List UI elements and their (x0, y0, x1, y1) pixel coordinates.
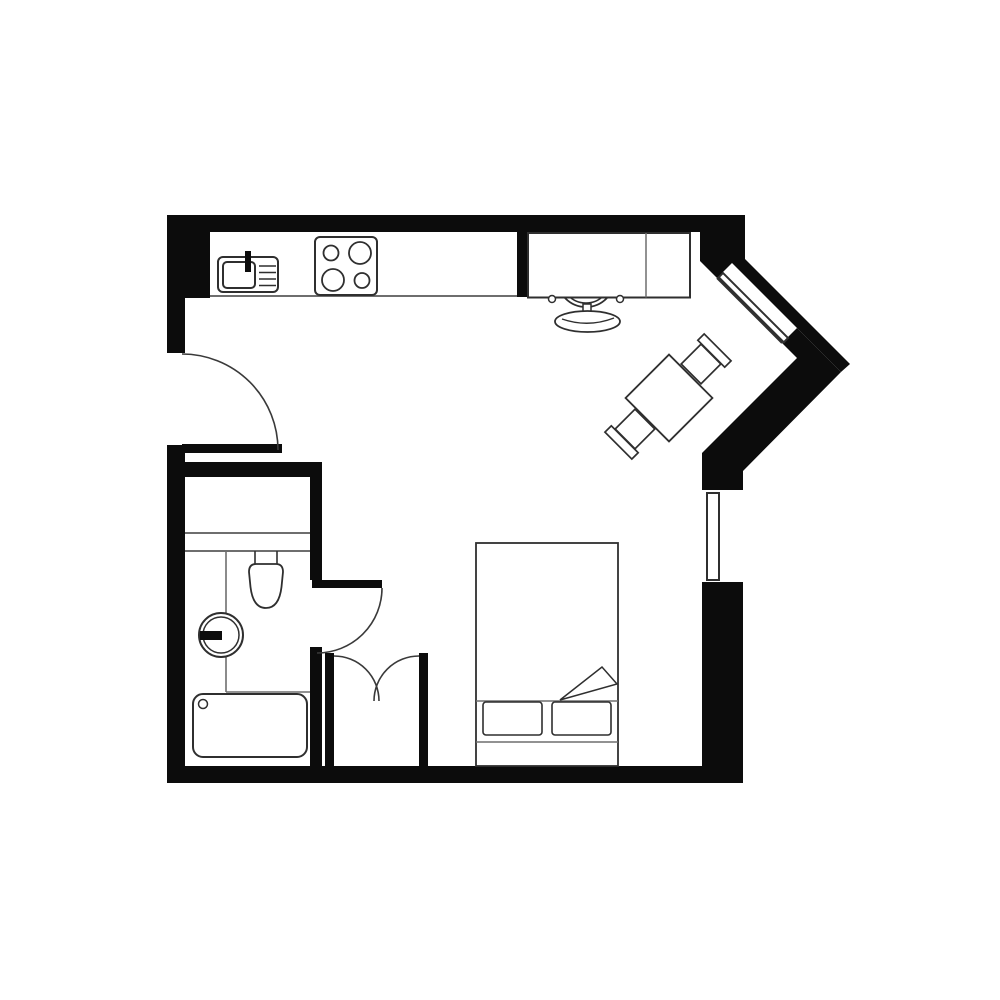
closet-door-left-arc (334, 656, 379, 701)
floor-plan-page: Studio apartment floor plan Studio apart… (0, 0, 1000, 1000)
bathroom-door (312, 580, 382, 653)
wall-left-upper (167, 215, 185, 353)
wall-left-lower (167, 445, 185, 782)
toilet (249, 551, 283, 608)
wall-bottom (167, 766, 743, 783)
sink-faucet (245, 251, 251, 272)
basin-faucet (200, 631, 222, 640)
wall-top (167, 215, 745, 232)
bathroom-door-swing-arc (317, 588, 382, 653)
bathroom-door-leaf (312, 580, 382, 588)
desk (528, 233, 690, 298)
bathroom (185, 533, 310, 757)
closet-doors (334, 656, 419, 701)
bed (476, 543, 618, 766)
entry-door-swing-arc (182, 354, 278, 450)
side-window (707, 493, 719, 580)
wall-pillar-kitchen (517, 232, 528, 297)
entry-door (182, 354, 282, 453)
bathtub (193, 694, 307, 757)
entry-door-leaf (182, 444, 282, 453)
wall-right-lower (702, 582, 743, 782)
wall-bathroom-right-lower (310, 647, 322, 766)
wall-bathroom-top (167, 462, 322, 477)
floor-plan-drawing: Studio apartment floor plan (0, 0, 1000, 1000)
desk-chair-armrest-right (617, 296, 624, 303)
pillow-right (552, 702, 611, 735)
round-basin (199, 613, 243, 657)
desk-chair-armrest-left (549, 296, 556, 303)
pillow-left (483, 702, 542, 735)
wall-chamfer-upper (700, 232, 745, 278)
side-window-pane (707, 493, 719, 580)
wall-bathroom-right-upper (310, 462, 322, 580)
wall-closet-jamb-right (419, 653, 428, 766)
wall-closet-jamb-left (325, 653, 334, 766)
stove (315, 237, 377, 295)
desk-chair-backrest (555, 311, 620, 332)
kitchen-sink (218, 251, 278, 292)
closet-door-right-arc (374, 656, 419, 701)
toilet-bowl (249, 564, 283, 608)
kitchen (210, 237, 517, 296)
dining-set (605, 334, 731, 459)
bathtub-body (193, 694, 307, 757)
workspace (528, 233, 690, 332)
